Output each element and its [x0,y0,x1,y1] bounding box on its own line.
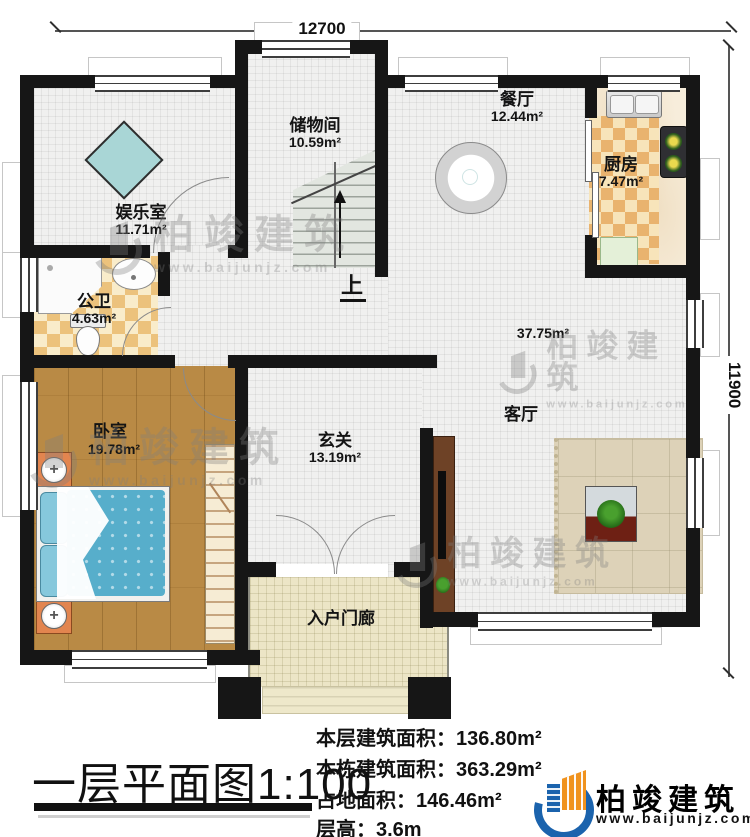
burner [665,133,682,150]
sliding-door-panel [585,120,592,182]
title-underline [34,803,312,811]
plant-small [436,577,450,593]
window-sill [398,57,508,77]
lamp: + [41,457,67,483]
wall-entrance [394,562,422,577]
room-area-storage: 10.59m² [289,135,341,150]
floor-plan: 12700 11900 [0,0,750,837]
wall-entertainment-bottom [228,245,248,258]
stat-label: 层高： [316,819,376,837]
room-area-dining: 12.44m² [491,109,543,124]
window [72,650,207,669]
wall-right [686,75,700,627]
clothes-rod [209,483,231,514]
shower-drain [47,265,53,271]
title-underline-shadow [38,815,310,818]
room-label-living: 客厅 [504,406,538,424]
stat-value: 3.6m [376,819,422,837]
room-label-kitchen: 厨房 [604,156,638,174]
room-label-dining: 餐厅 [500,91,534,109]
window [262,40,350,58]
brand-logo-icon [534,768,590,830]
window [478,612,652,631]
room-area-entertainment: 11.71m² [115,222,166,237]
stat-floor-area: 本层建筑面积：136.80m² [316,722,542,751]
tv [438,471,446,559]
logo-building-blue [547,784,560,812]
sink-basin [610,95,634,114]
room-area-bedroom: 19.78m² [88,442,140,457]
wall-living-left [420,428,433,628]
porch-pillar [218,677,261,719]
top-dimension-label: 12700 [292,19,351,39]
room-area-living: 37.75m² [517,326,569,341]
stair-arrow-shaft [339,200,341,258]
stairs [293,150,375,268]
stair-arrow-head [334,190,346,203]
stat-floor-height: 层高：3.6m [316,813,422,837]
wall-kitchen-bottom [585,265,700,278]
room-label-bedroom: 卧室 [93,423,127,441]
window [686,458,704,528]
logo-building-orange [562,770,586,810]
window-sill [88,57,222,77]
window-sill [2,375,22,517]
room-label-storage: 储物间 [290,117,341,135]
stove [660,126,688,178]
bathroom-sink [112,258,156,290]
room-area-foyer: 13.19m² [309,450,361,465]
lamp: + [41,603,67,629]
room-label-foyer: 玄关 [318,432,352,450]
wall-entertainment-bottom [20,245,150,258]
nightstand: + [36,452,72,488]
stairs-up-label: 上 [341,274,363,298]
stat-label: 本层建筑面积： [316,728,456,750]
right-dimension-label: 11900 [724,356,744,414]
top-dimension-line [55,30,731,32]
wardrobe [205,444,235,644]
brand-url: www.baijunjz.com [596,810,750,826]
room-label-porch: 入户门廊 [307,610,375,628]
wall-foyer-left [235,355,248,665]
room-area-kitchen: 7.47m² [599,174,643,189]
nightstand: + [36,598,72,634]
tv-cabinet [433,436,455,622]
coffee-table [585,486,637,542]
stair-rail [334,162,336,268]
wall-entrance [248,562,276,577]
stat-value: 363.29m² [456,759,542,781]
room-area-bathroom: 4.63m² [72,311,116,326]
window [686,300,704,348]
kitchen-sink [606,90,662,118]
porch-pillar [408,677,451,719]
wall-kitchen-left [585,88,597,118]
dining-table-center [462,169,478,185]
wall-foyer-top [228,355,437,368]
window [405,75,498,92]
bed [36,486,170,602]
wall-bedroom-top [20,355,175,368]
stat-value: 146.46m² [416,790,502,812]
kitchen-counter [600,237,638,267]
room-label-entertainment: 娱乐室 [116,204,167,222]
window-sill [700,158,720,240]
wall-storage-left [235,40,248,258]
stat-value: 136.80m² [456,728,542,750]
window [608,75,680,92]
sink-basin [635,95,659,114]
window [20,258,38,312]
porch-steps [262,686,410,714]
wall-bathroom-right [158,252,170,296]
burner [665,155,682,172]
wall-kitchen-left [585,235,597,268]
sink-drain [131,275,136,280]
plant [597,500,625,528]
stairs-up-underline [340,299,366,302]
window [20,382,38,510]
window-sill [2,252,22,318]
wall-left [20,75,34,665]
room-label-bathroom: 公卫 [77,293,111,311]
porch-edge [248,577,250,685]
window [95,75,210,92]
window-sill [600,57,690,77]
